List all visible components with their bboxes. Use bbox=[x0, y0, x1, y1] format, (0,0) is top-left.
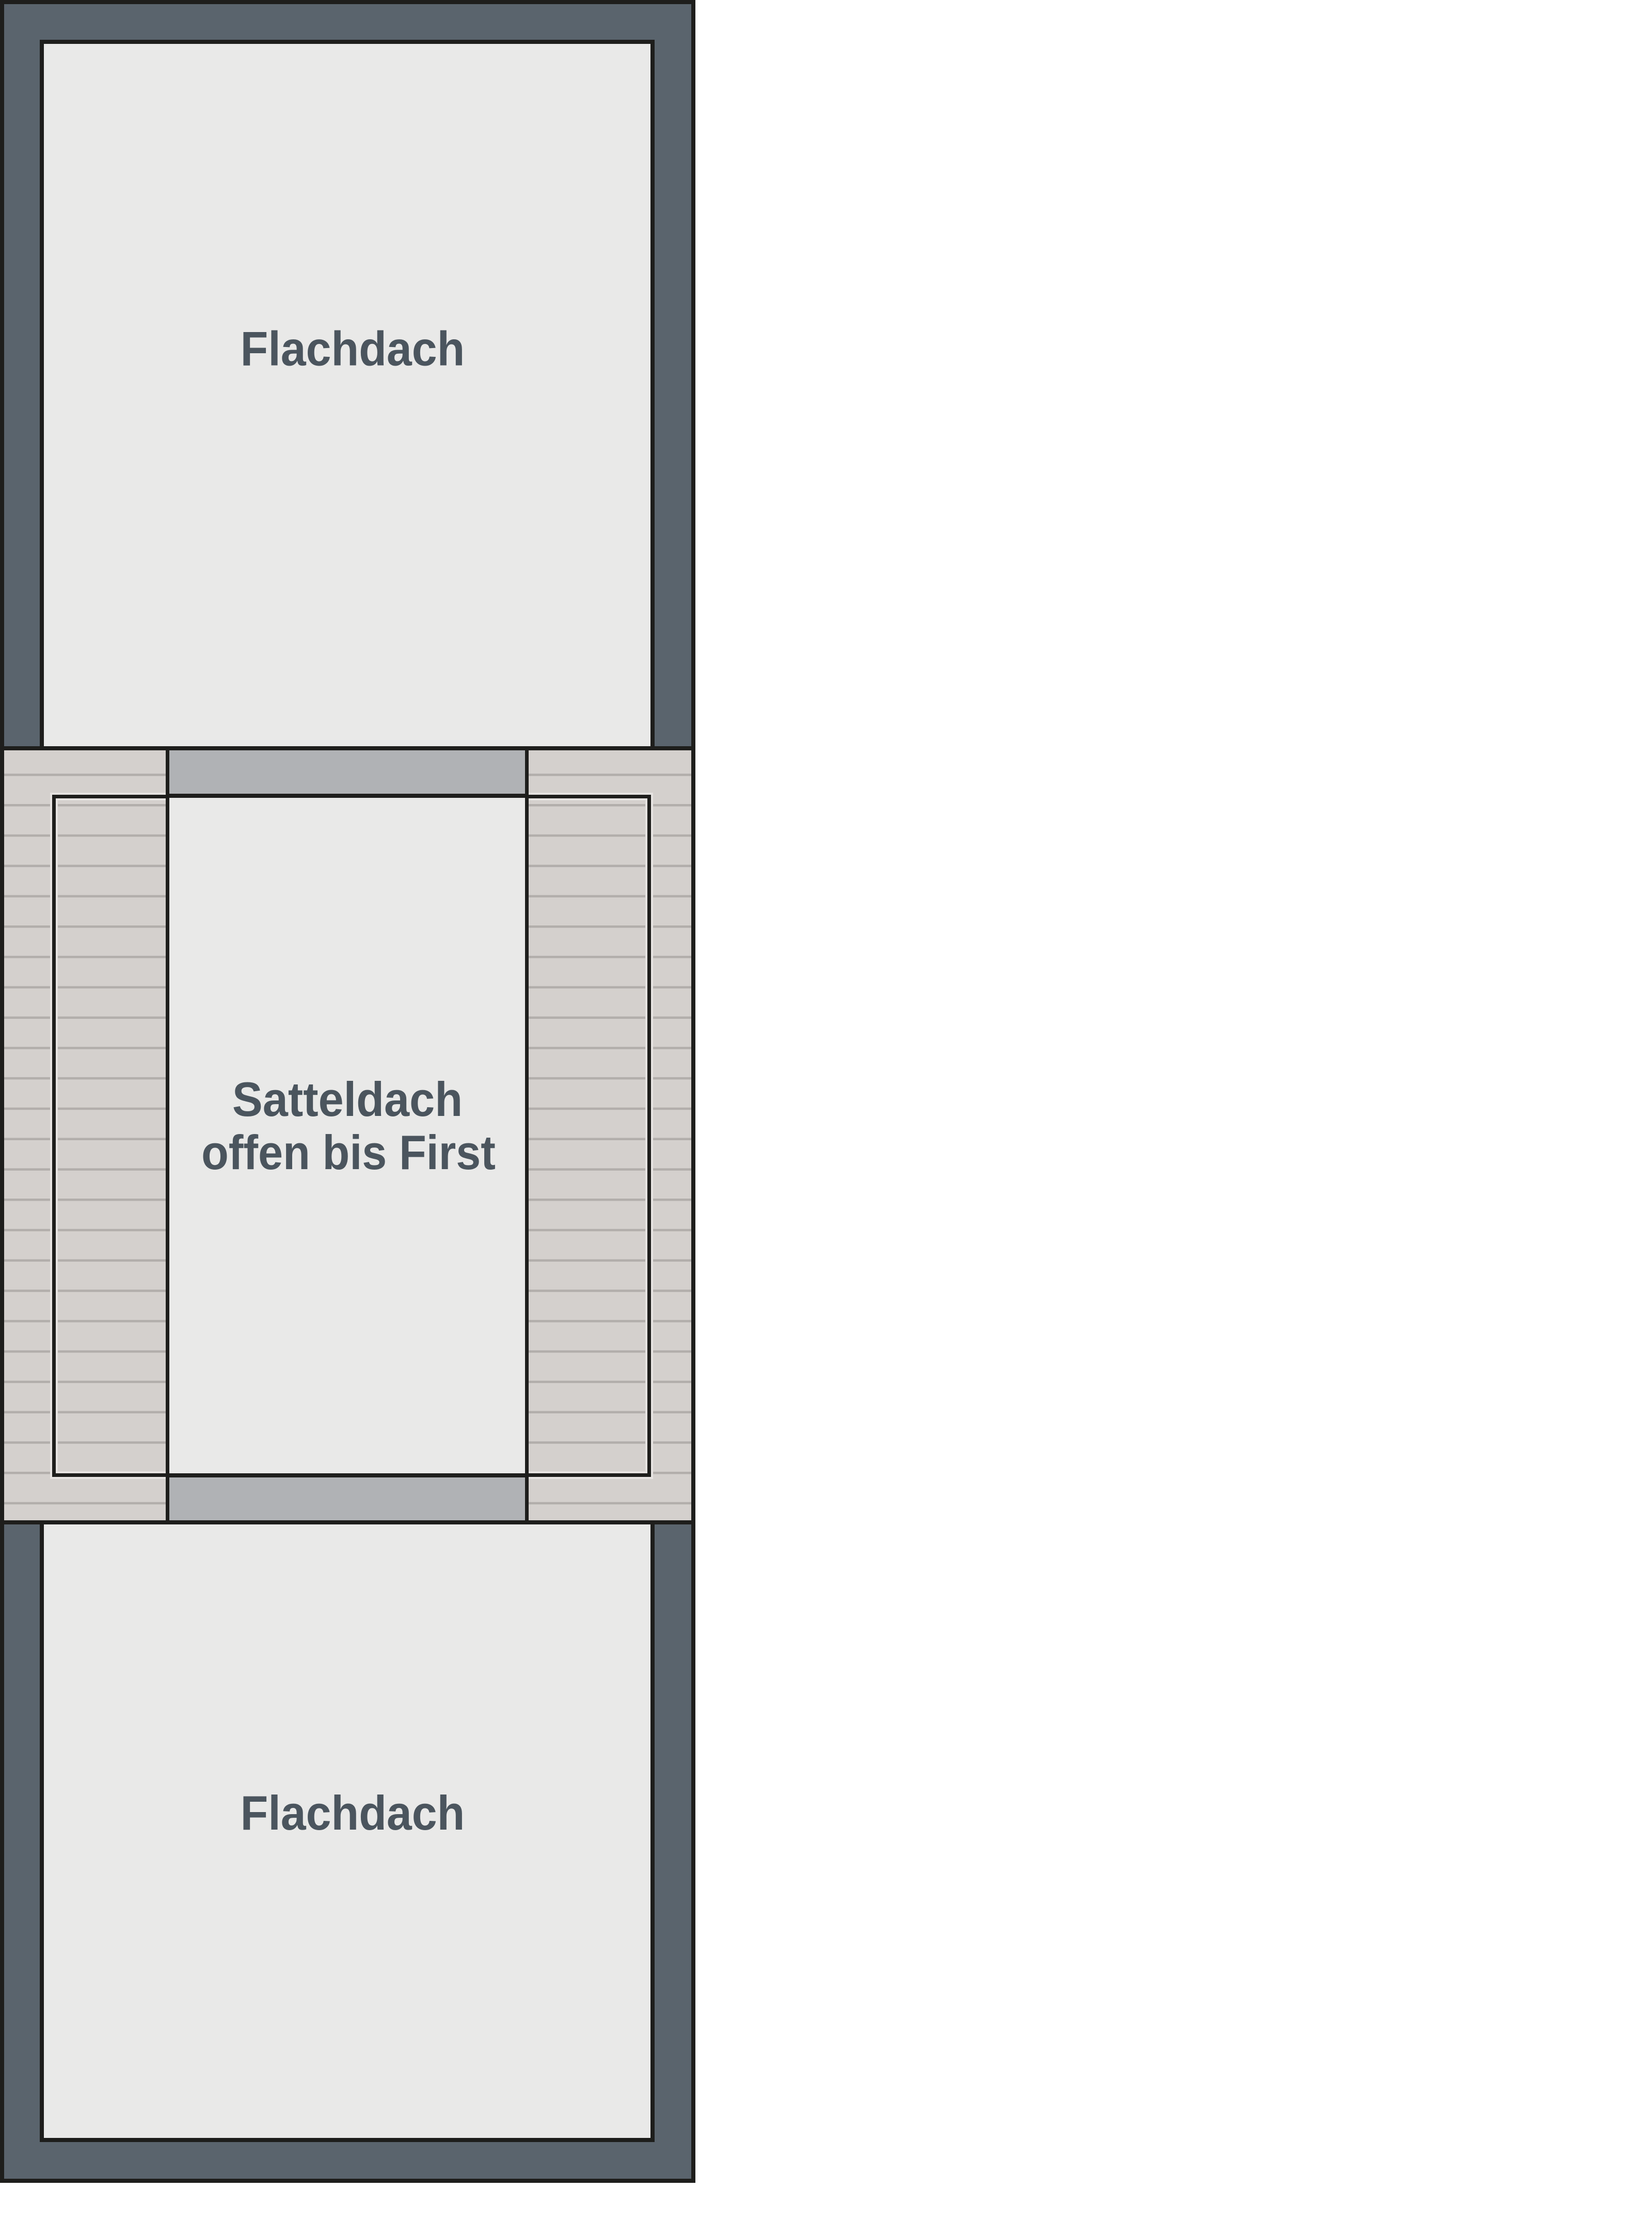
svg-text:Satteldach: Satteldach bbox=[232, 1073, 463, 1127]
svg-text:Flachdach: Flachdach bbox=[241, 1786, 465, 1840]
svg-text:Flachdach: Flachdach bbox=[241, 322, 465, 376]
svg-text:offen bis First: offen bis First bbox=[201, 1126, 496, 1180]
